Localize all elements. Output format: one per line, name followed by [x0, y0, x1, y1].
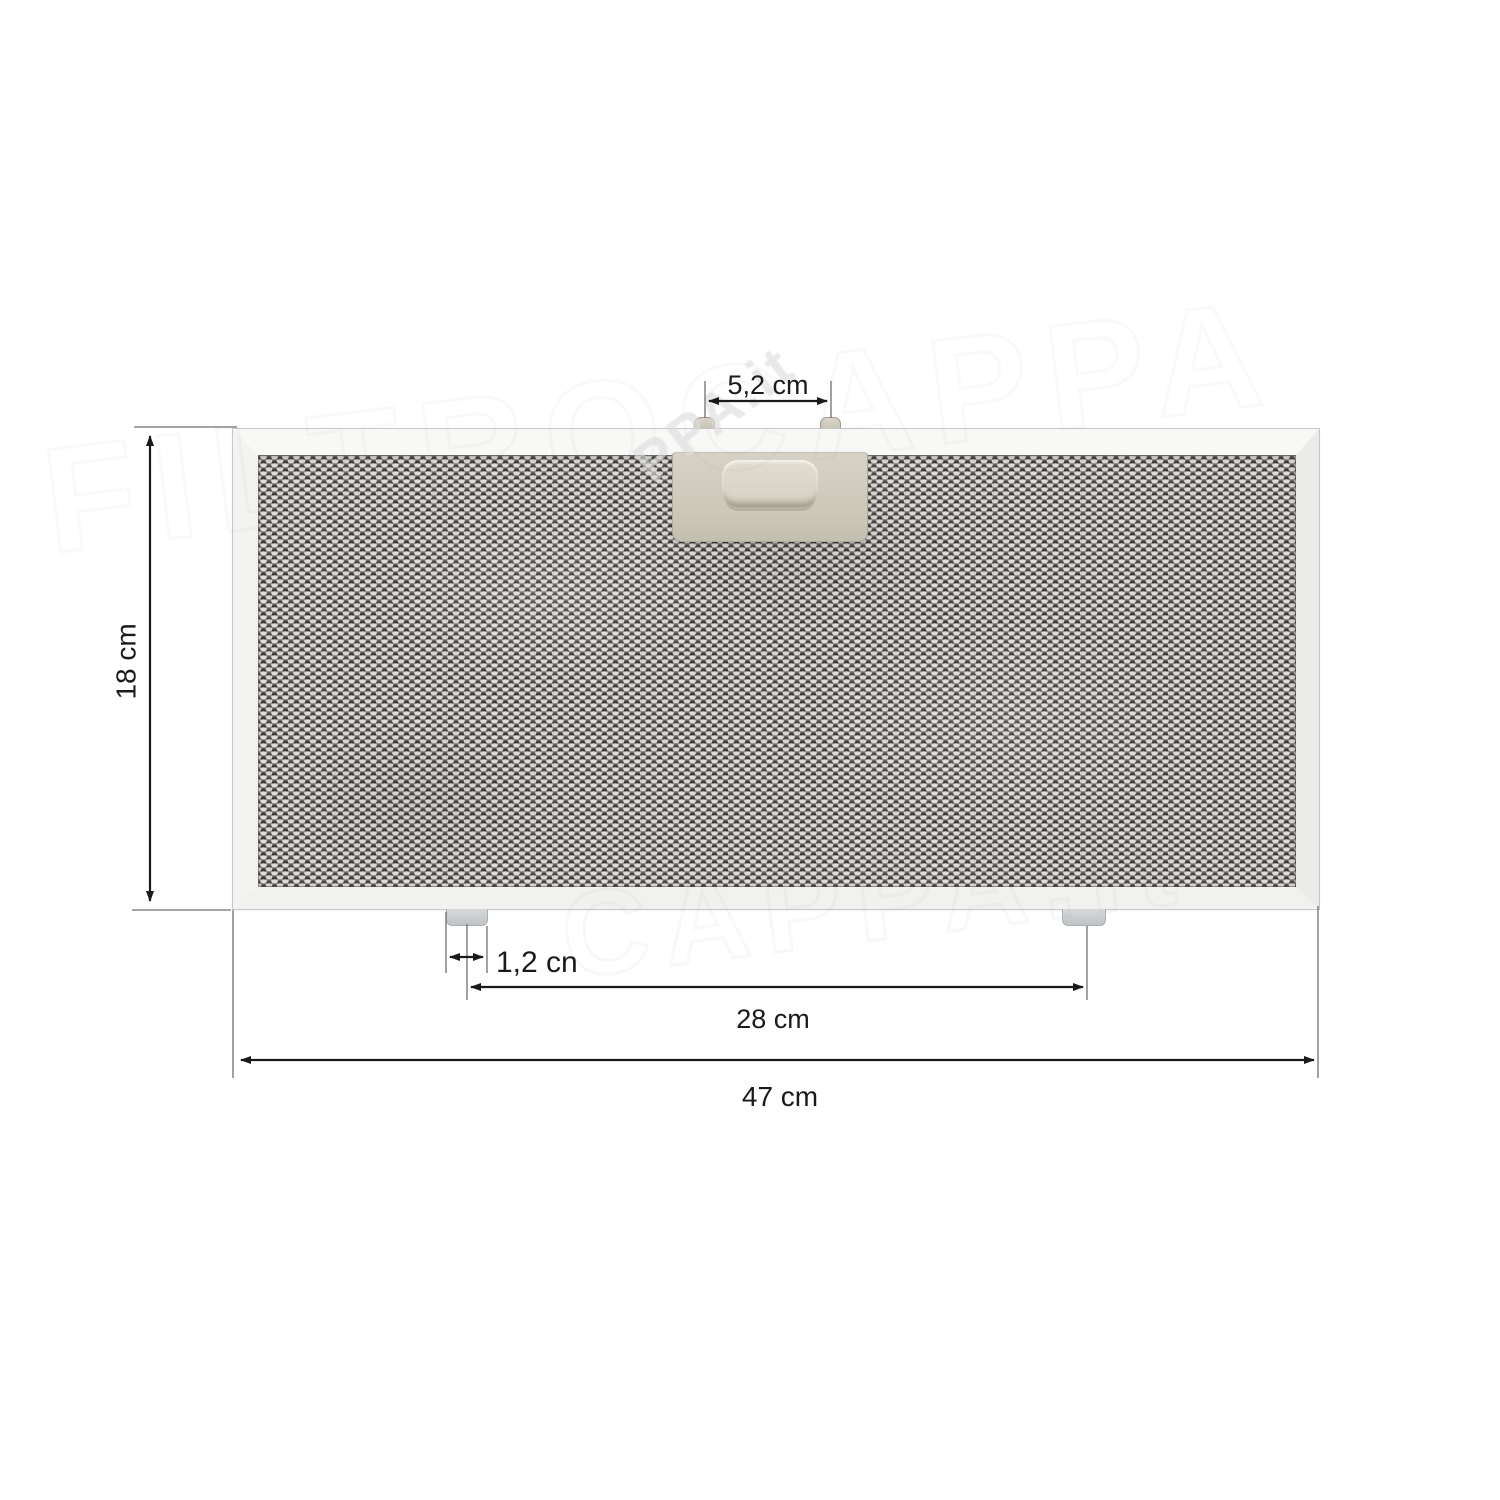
- product-dimension-diagram: FILTROCAPPA PPA.it CAPPA.it: [0, 0, 1500, 1500]
- bottom-tab-left: [446, 909, 488, 926]
- dim-label-height: 18 cm: [112, 600, 143, 722]
- dim-label-tab-width: 1,2 cn: [496, 946, 626, 979]
- dim-label-total-width: 47 cm: [720, 1082, 840, 1113]
- dim-label-tab-spacing: 28 cm: [713, 1005, 833, 1035]
- latch-handle-recess: [722, 460, 818, 507]
- latch-plate: [672, 452, 868, 542]
- dim-label-pin-spacing: 5,2 cm: [708, 371, 828, 401]
- bottom-tab-right: [1062, 909, 1106, 926]
